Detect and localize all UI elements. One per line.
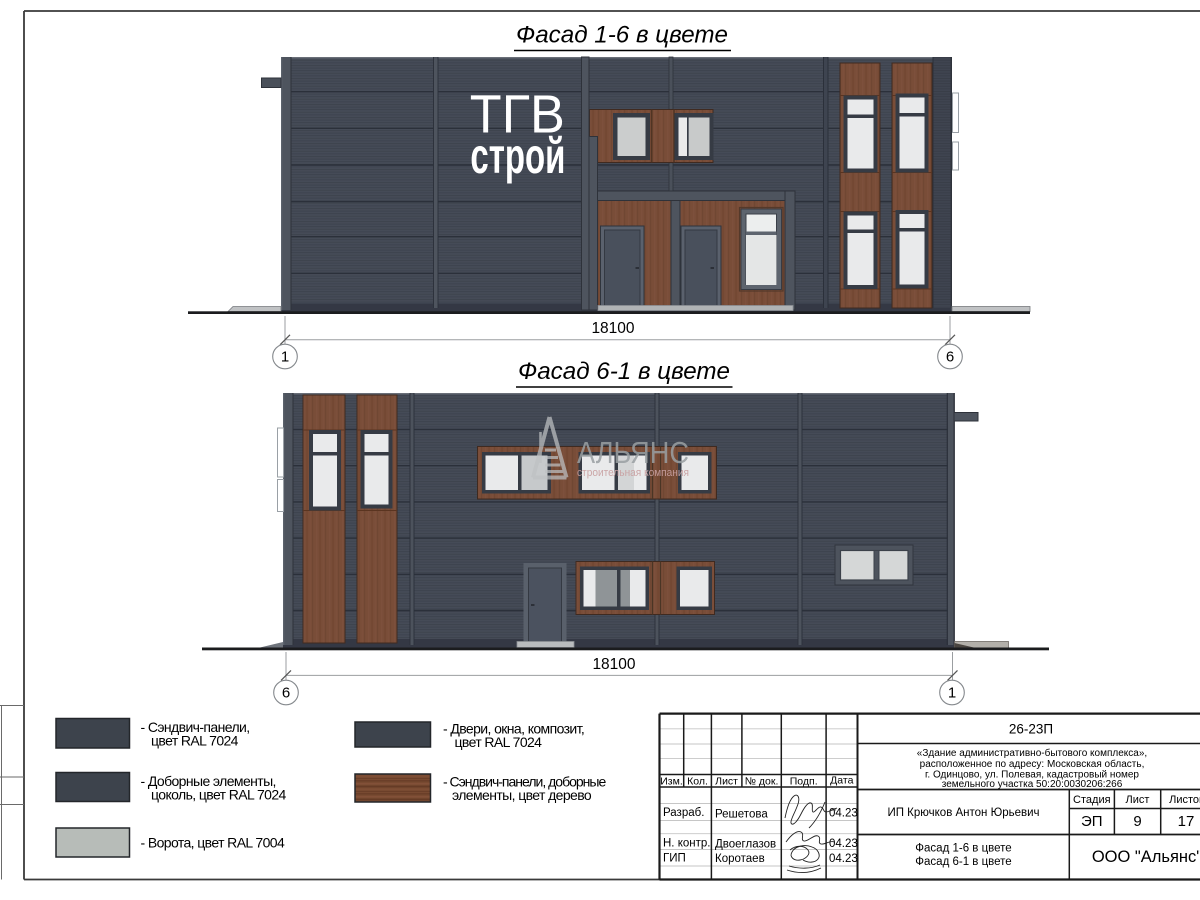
svg-text:6: 6	[946, 349, 954, 366]
svg-text:ООО "Альянс": ООО "Альянс"	[1092, 848, 1200, 866]
svg-text:цоколь, цвет RAL 7024: цоколь, цвет RAL 7024	[151, 787, 287, 803]
svg-text:Фасад 1-6 в цвете: Фасад 1-6 в цвете	[516, 22, 728, 49]
svg-text:земельного участка 50:20:00302: земельного участка 50:20:0030206:266	[942, 779, 1123, 790]
svg-text:ЭП: ЭП	[1081, 813, 1103, 830]
svg-text:АЛЬЯНС: АЛЬЯНС	[577, 435, 689, 470]
svg-text:№ док.: № док.	[745, 776, 779, 788]
svg-text:04.23: 04.23	[829, 853, 858, 865]
svg-text:1: 1	[281, 349, 289, 366]
svg-text:Лист: Лист	[715, 776, 738, 788]
svg-text:9: 9	[1133, 813, 1141, 830]
svg-text:элементы, цвет дерево: элементы, цвет дерево	[452, 787, 592, 803]
svg-text:Фасад 6-1 в цвете: Фасад 6-1 в цвете	[915, 856, 1011, 868]
svg-text:1: 1	[948, 685, 956, 702]
svg-text:Лист: Лист	[1126, 794, 1150, 806]
svg-text:строй: строй	[470, 128, 565, 184]
svg-text:Изм.: Изм.	[660, 776, 683, 788]
svg-text:6: 6	[282, 685, 290, 702]
svg-text:Разраб.: Разраб.	[663, 807, 704, 819]
svg-text:расположенное по адресу: Моско: расположенное по адресу: Московская обла…	[920, 758, 1145, 770]
svg-text:Двоеглазов: Двоеглазов	[715, 839, 776, 851]
svg-text:«Здание административно-бытово: «Здание административно-бытового комплек…	[917, 747, 1147, 759]
svg-text:Стадия: Стадия	[1073, 794, 1111, 806]
svg-text:Фасад 1-6 в цвете: Фасад 1-6 в цвете	[915, 843, 1011, 855]
svg-text:Листов: Листов	[1169, 794, 1200, 806]
svg-text:Фасад 6-1 в цвете: Фасад 6-1 в цвете	[518, 358, 730, 385]
svg-text:строительная компания: строительная компания	[577, 467, 689, 479]
svg-text:ГИП: ГИП	[663, 853, 686, 865]
svg-text:- Ворота, цвет RAL 7004: - Ворота, цвет RAL 7004	[141, 835, 285, 851]
svg-text:Дата: Дата	[830, 775, 853, 787]
svg-text:цвет RAL 7024: цвет RAL 7024	[455, 734, 543, 750]
svg-text:Н. контр.: Н. контр.	[663, 838, 710, 850]
svg-text:Подп.: Подп.	[790, 776, 818, 788]
svg-text:Коротаев: Коротаев	[715, 853, 765, 865]
svg-text:18100: 18100	[592, 656, 635, 673]
svg-text:26-23П: 26-23П	[1009, 722, 1053, 737]
svg-text:17: 17	[1178, 813, 1195, 830]
svg-text:Решетова: Решетова	[715, 809, 768, 821]
svg-text:цвет RAL 7024: цвет RAL 7024	[151, 733, 239, 749]
svg-text:Кол.: Кол.	[687, 776, 708, 788]
svg-text:18100: 18100	[591, 320, 634, 337]
svg-text:ИП Крючков Антон Юрьевич: ИП Крючков Антон Юрьевич	[887, 807, 1039, 819]
svg-text:04.23: 04.23	[829, 838, 858, 850]
